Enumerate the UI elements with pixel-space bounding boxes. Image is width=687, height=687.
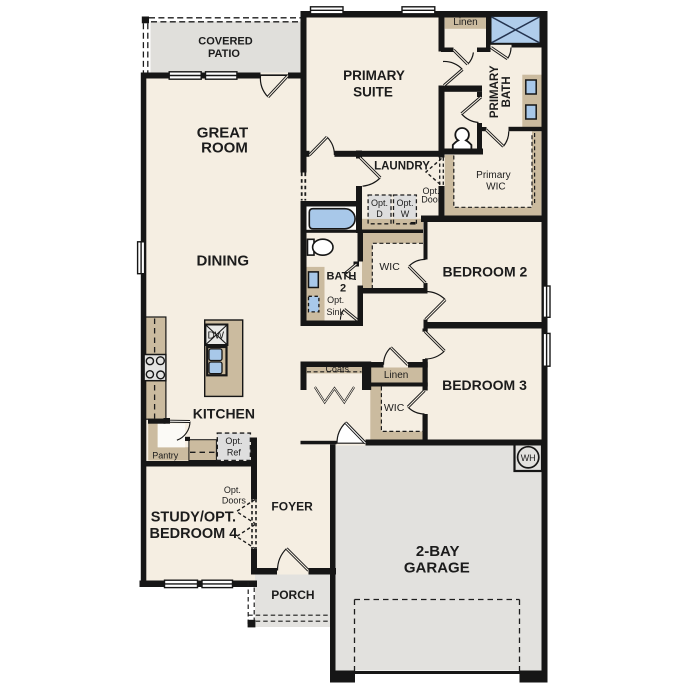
svg-text:Opt.: Opt. bbox=[224, 485, 241, 495]
svg-text:KITCHEN: KITCHEN bbox=[193, 405, 255, 421]
svg-text:Opt.: Opt. bbox=[371, 198, 388, 208]
svg-text:COVERED: COVERED bbox=[198, 36, 252, 48]
svg-text:WIC: WIC bbox=[384, 402, 405, 414]
svg-text:LAUNDRY: LAUNDRY bbox=[374, 161, 430, 173]
svg-text:Opt.: Opt. bbox=[396, 198, 413, 208]
svg-text:Linen: Linen bbox=[384, 370, 408, 381]
svg-text:Primary: Primary bbox=[476, 170, 510, 181]
svg-text:ROOM: ROOM bbox=[201, 140, 248, 157]
svg-text:PATIO: PATIO bbox=[208, 48, 240, 60]
svg-text:DINING: DINING bbox=[197, 253, 250, 270]
svg-text:BEDROOM 3: BEDROOM 3 bbox=[442, 377, 527, 393]
svg-text:SUITE: SUITE bbox=[353, 84, 393, 99]
svg-text:D: D bbox=[376, 209, 383, 219]
svg-text:BEDROOM 2: BEDROOM 2 bbox=[443, 264, 528, 280]
svg-text:2-BAY: 2-BAY bbox=[416, 543, 460, 560]
svg-text:Coats: Coats bbox=[325, 364, 349, 374]
svg-text:WIC: WIC bbox=[486, 181, 505, 192]
svg-text:STUDY/OPT.: STUDY/OPT. bbox=[151, 509, 236, 525]
svg-text:BEDROOM 4: BEDROOM 4 bbox=[149, 526, 237, 542]
svg-text:Pantry: Pantry bbox=[152, 451, 179, 461]
svg-text:Opt.: Opt. bbox=[327, 295, 344, 305]
svg-text:Linen: Linen bbox=[453, 17, 477, 28]
svg-text:Doors: Doors bbox=[222, 496, 247, 506]
svg-text:PRIMARY: PRIMARY bbox=[489, 65, 501, 118]
svg-text:WH: WH bbox=[521, 453, 536, 463]
svg-text:Door: Door bbox=[421, 195, 441, 205]
svg-text:Sink: Sink bbox=[327, 307, 345, 317]
svg-text:PRIMARY: PRIMARY bbox=[343, 68, 405, 83]
svg-text:2: 2 bbox=[340, 283, 346, 295]
svg-text:Ref: Ref bbox=[227, 448, 242, 458]
svg-text:GARAGE: GARAGE bbox=[404, 560, 470, 577]
svg-text:W: W bbox=[401, 209, 410, 219]
svg-text:FOYER: FOYER bbox=[271, 500, 313, 514]
svg-text:Opt.: Opt. bbox=[225, 436, 242, 446]
svg-text:PORCH: PORCH bbox=[271, 588, 314, 602]
svg-text:BATH: BATH bbox=[327, 271, 357, 283]
svg-text:BATH: BATH bbox=[501, 76, 513, 107]
svg-text:WIC: WIC bbox=[379, 261, 400, 273]
svg-text:DW: DW bbox=[207, 330, 224, 341]
